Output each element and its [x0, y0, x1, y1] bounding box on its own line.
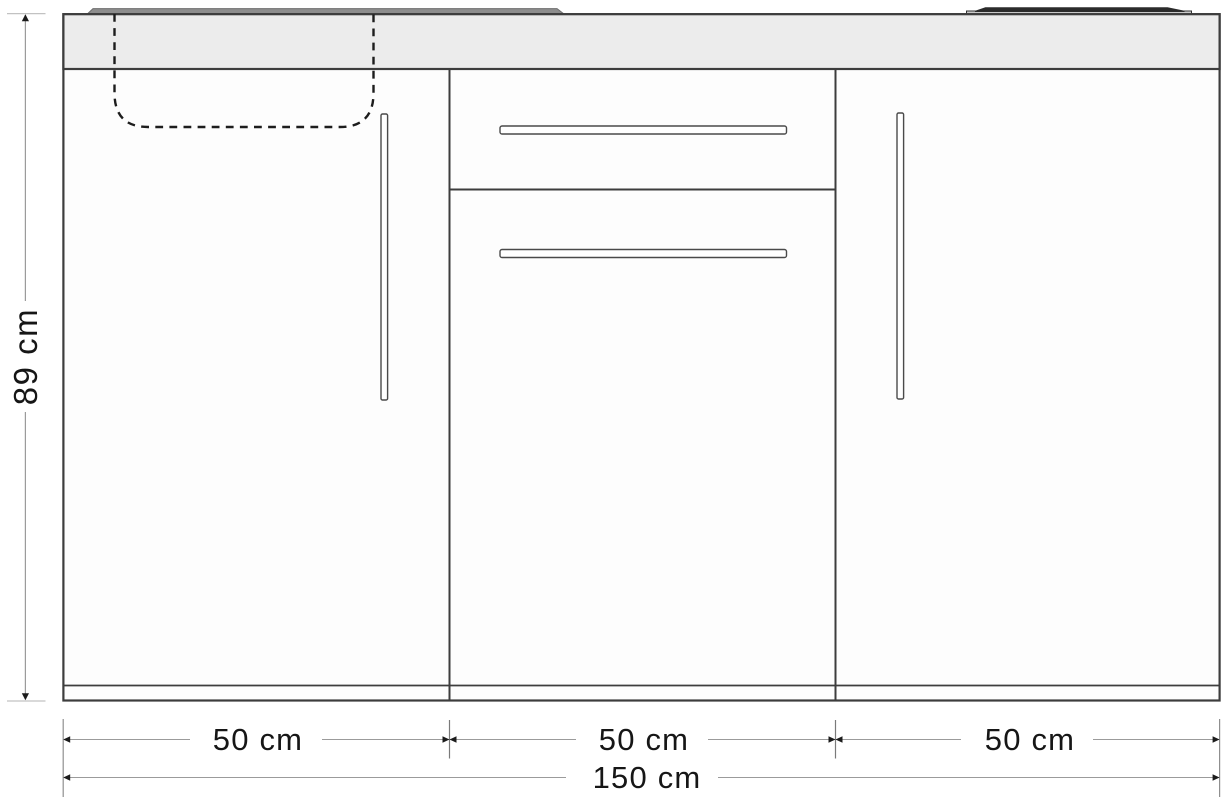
svg-text:150 cm: 150 cm: [593, 760, 702, 795]
svg-text:89 cm: 89 cm: [7, 308, 44, 405]
svg-text:50 cm: 50 cm: [213, 722, 303, 757]
svg-text:50 cm: 50 cm: [599, 722, 689, 757]
svg-text:50 cm: 50 cm: [985, 722, 1075, 757]
